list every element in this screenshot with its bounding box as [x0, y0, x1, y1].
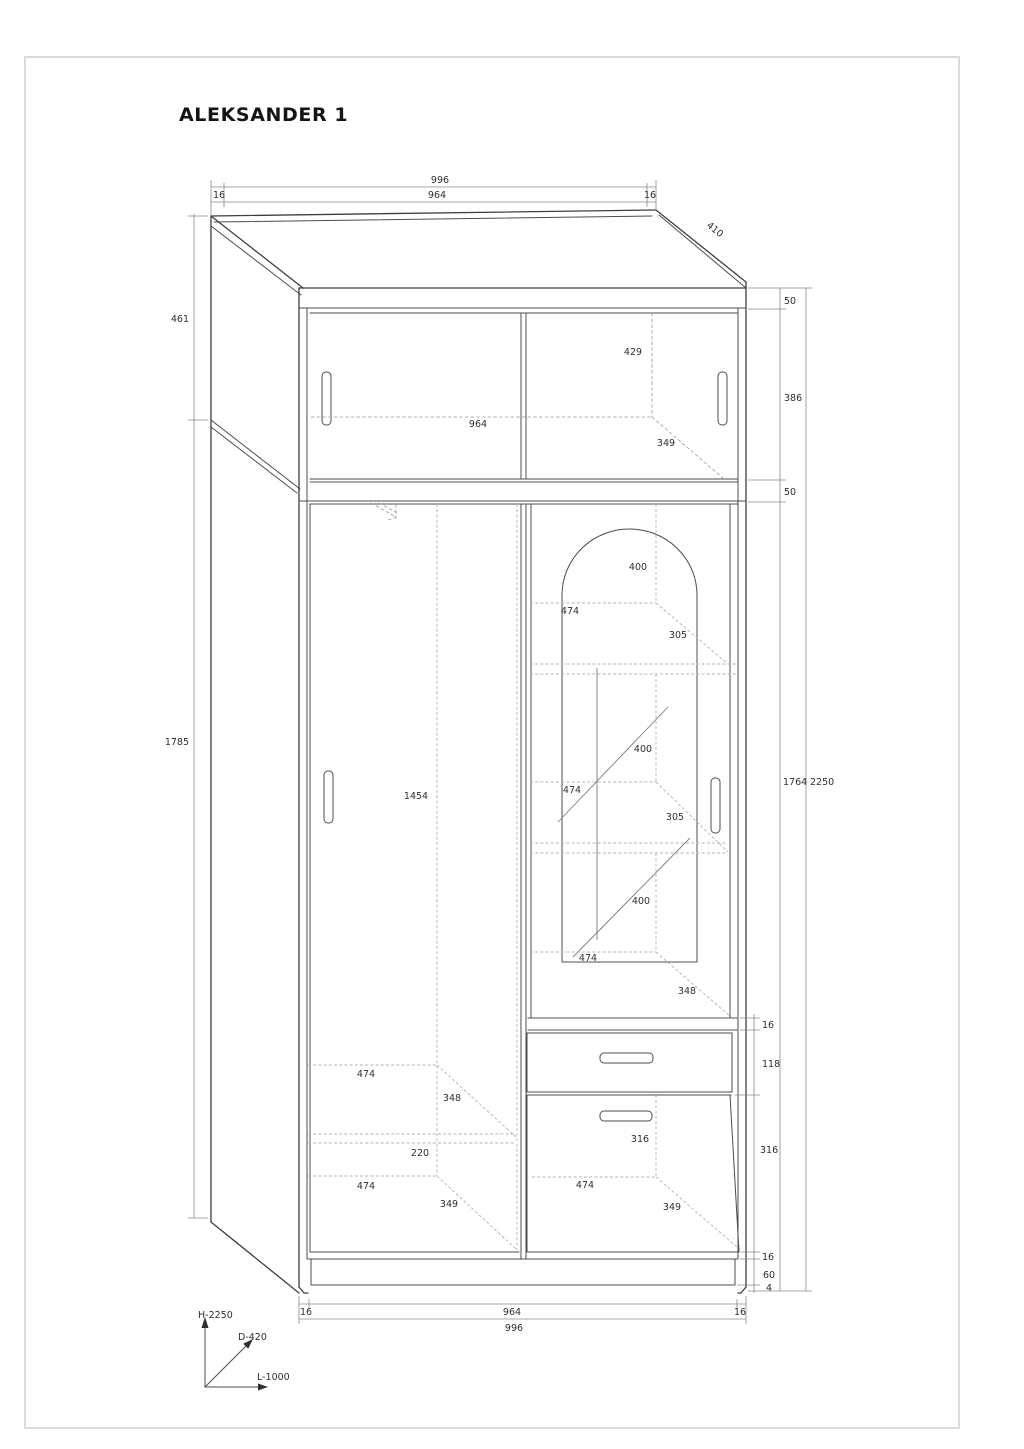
height-axis-label: H-2250 [198, 1310, 233, 1321]
dim-label: 50 [784, 296, 796, 307]
dim-label: 50 [784, 487, 796, 498]
dim-label: 400 [634, 744, 652, 755]
mirror-door-handle [711, 778, 720, 833]
dim-label: 16 [762, 1252, 774, 1263]
left-door-handle [324, 771, 333, 823]
dim-label: 348 [678, 986, 696, 997]
dim-label: 400 [632, 896, 650, 907]
depth-axis-label: D-420 [238, 1332, 267, 1343]
dim-label: 16 [734, 1307, 746, 1318]
dim-label: 316 [760, 1145, 778, 1156]
dim-label: 16 [644, 190, 656, 201]
dim-label: 1785 [165, 737, 189, 748]
dim-label: 429 [624, 347, 642, 358]
dim-label: 1454 [404, 791, 428, 802]
technical-drawing: ALEKSANDER 1 [0, 0, 1024, 1449]
dim-label: 349 [657, 438, 675, 449]
dim-label: 474 [561, 606, 579, 617]
dim-label: 349 [663, 1202, 681, 1213]
dim-label: 1764 [783, 777, 807, 788]
dim-label: 996 [505, 1323, 523, 1334]
upper-right-door-handle [718, 372, 727, 425]
dim-label: 964 [503, 1307, 521, 1318]
dim-label: 316 [631, 1134, 649, 1145]
dim-label: 305 [666, 812, 684, 823]
dim-label: 349 [440, 1199, 458, 1210]
length-axis-label: L-1000 [257, 1372, 290, 1383]
dim-label: 474 [357, 1069, 375, 1080]
dim-label: 474 [579, 953, 597, 964]
dim-label: 474 [357, 1181, 375, 1192]
dim-label: 996 [431, 175, 449, 186]
dim-label: 16 [762, 1020, 774, 1031]
dim-label: 461 [171, 314, 189, 325]
dim-label: 305 [669, 630, 687, 641]
dim-label: 220 [411, 1148, 429, 1159]
dim-label: 118 [762, 1059, 780, 1070]
dim-label: 16 [300, 1307, 312, 1318]
dim-label: 16 [213, 190, 225, 201]
dim-label: 474 [576, 1180, 594, 1191]
drawer-handle [600, 1053, 653, 1063]
dim-label: 400 [629, 562, 647, 573]
drawing-title: ALEKSANDER 1 [179, 104, 348, 126]
lower-door-handle [600, 1111, 652, 1121]
dim-label: 964 [469, 419, 487, 430]
dim-label: 348 [443, 1093, 461, 1104]
dim-label: 964 [428, 190, 446, 201]
dim-label: 4 [766, 1283, 772, 1294]
dim-label: 60 [763, 1270, 775, 1281]
dim-label: 2250 [810, 777, 834, 788]
dim-label: 474 [563, 785, 581, 796]
dim-label: 386 [784, 393, 802, 404]
